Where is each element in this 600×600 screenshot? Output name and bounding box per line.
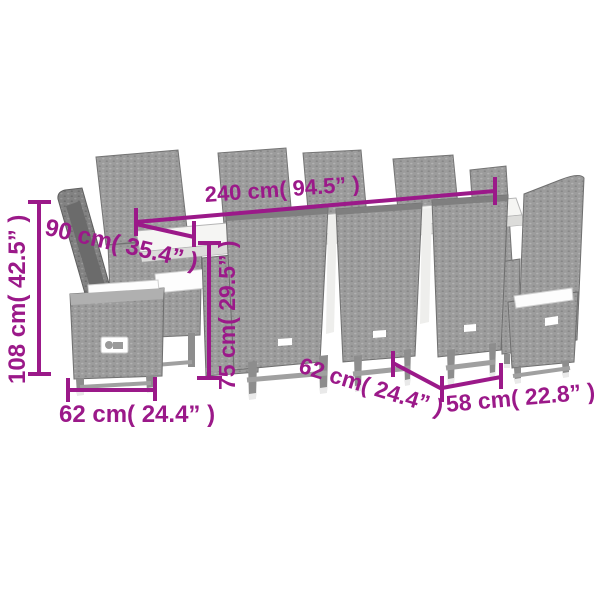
- strap-buckle: [464, 324, 476, 332]
- leg-stretcher: [513, 368, 570, 376]
- dimension-label-table-height: 75 cm( 29.5” ): [216, 240, 239, 390]
- furniture-dimension-diagram: 240 cm( 94.5” ) 90 cm( 35.4” ) 75 cm( 29…: [0, 0, 600, 600]
- gap-sliver: [420, 208, 432, 324]
- dimension-label-armchair-height: 108 cm( 42.5” ): [6, 215, 30, 384]
- furniture-illustration: [0, 0, 600, 600]
- recline-buckle-glyph: [105, 341, 113, 349]
- chair-foot: [515, 378, 521, 384]
- chair-foot: [504, 364, 510, 368]
- chair-foot: [249, 393, 256, 400]
- front-chairs: [226, 195, 508, 400]
- chair-backrest: [226, 208, 328, 370]
- chair-foot: [320, 387, 327, 394]
- chair-backrest: [336, 203, 422, 362]
- dimension-label-armchair-width: 62 cm( 24.4” ): [59, 403, 215, 427]
- leg-stretcher: [80, 383, 151, 387]
- chair-backrest: [432, 195, 508, 357]
- strap-buckle: [278, 338, 292, 346]
- recline-buckle-glyph: [113, 342, 123, 349]
- chair-foot: [563, 372, 569, 378]
- strap-buckle: [373, 330, 386, 338]
